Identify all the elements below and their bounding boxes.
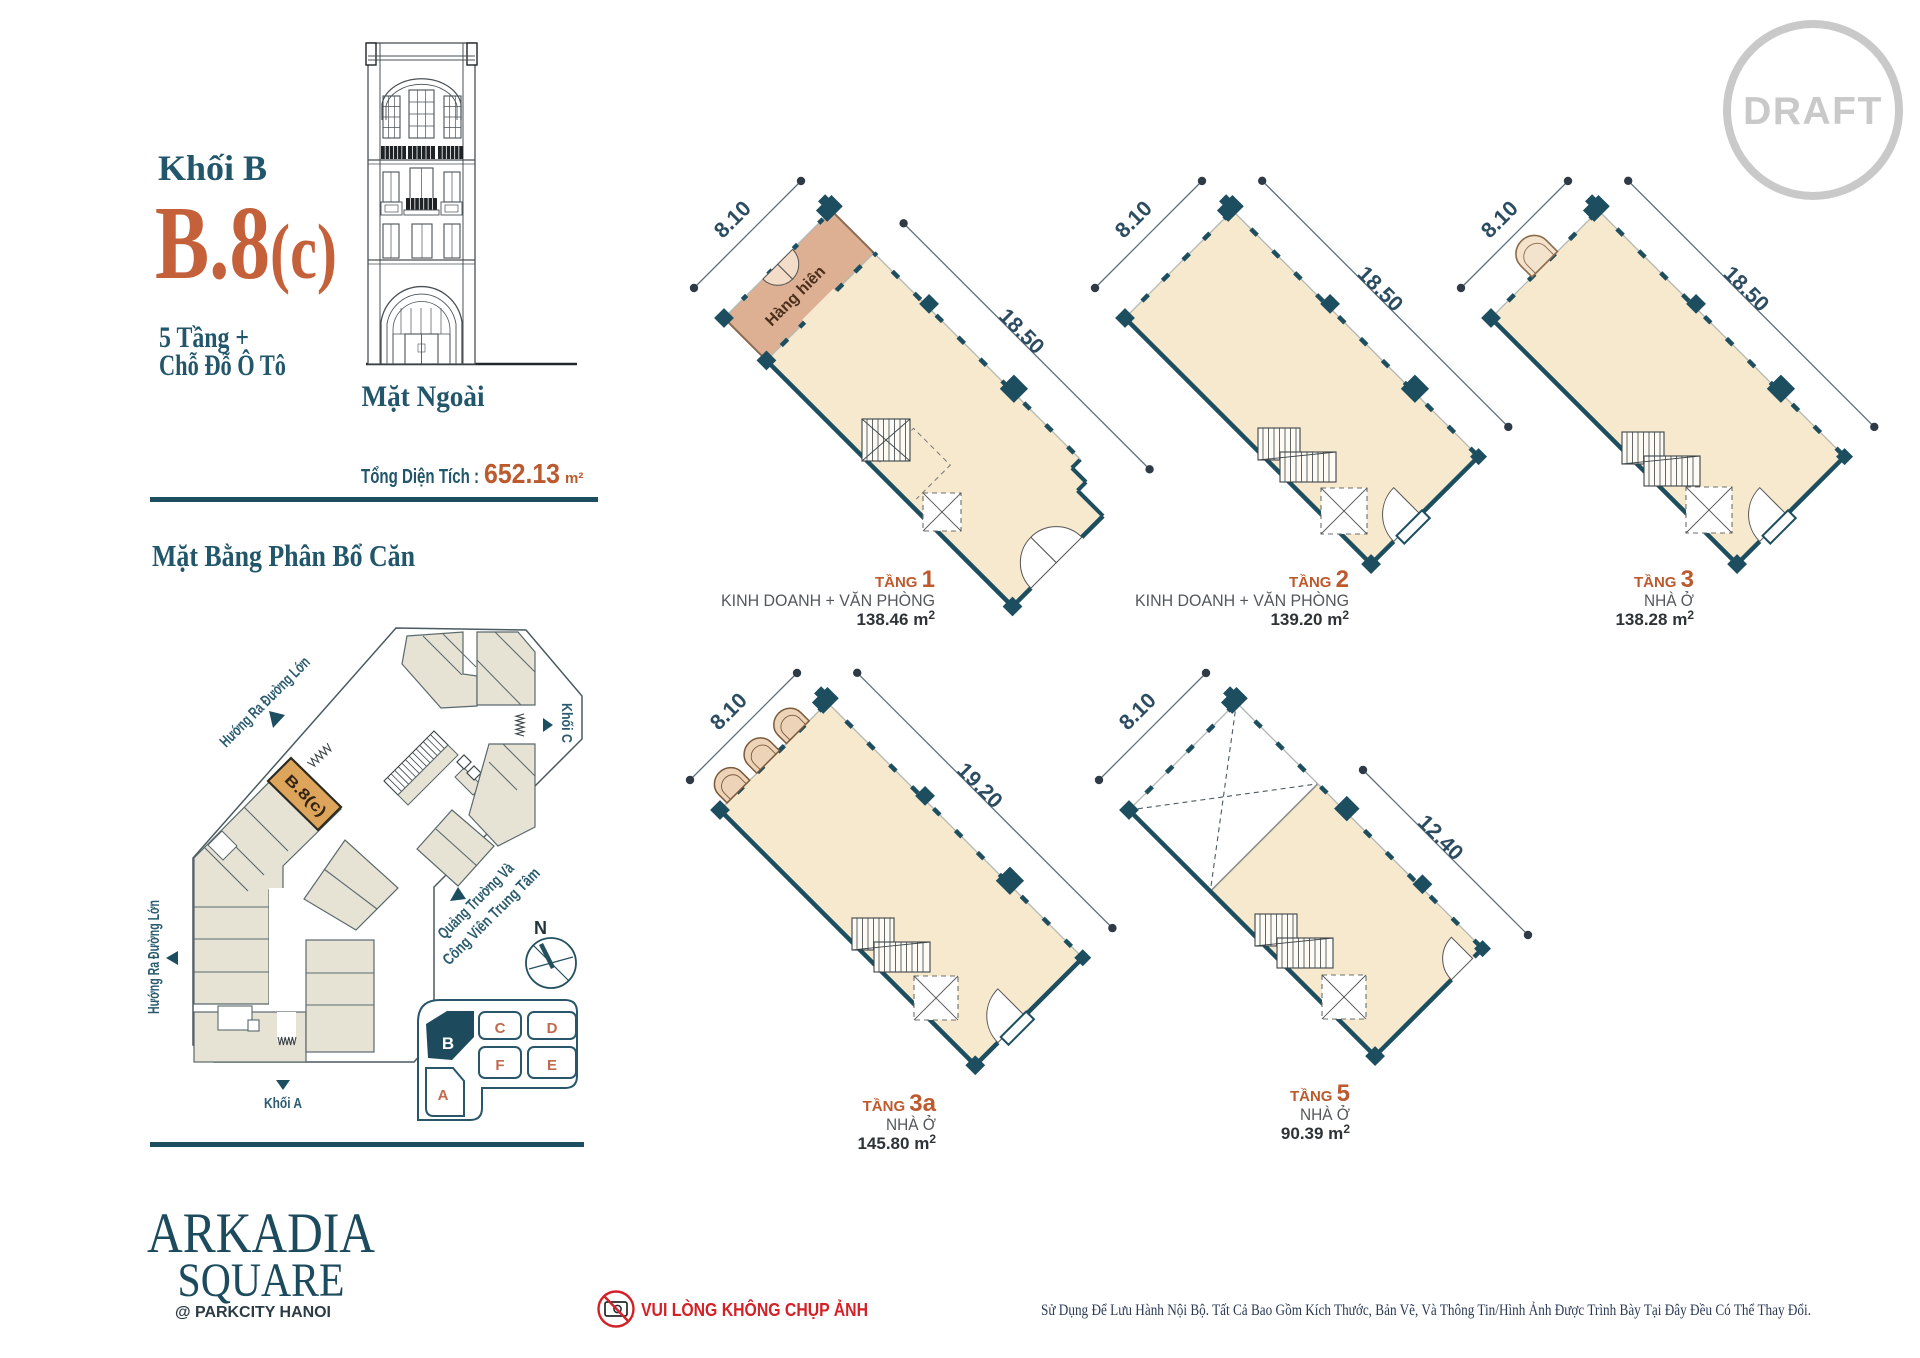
svg-text:Khối B: Khối B	[158, 148, 267, 188]
svg-text:C: C	[495, 1020, 506, 1037]
svg-text:D: D	[547, 1020, 558, 1037]
svg-text:90.39 m2: 90.39 m2	[1281, 1122, 1350, 1143]
svg-text:KINH DOANH + VĂN PHÒNG: KINH DOANH + VĂN PHÒNG	[1135, 591, 1349, 610]
svg-text:Khối C: Khối C	[558, 703, 575, 743]
svg-text:138.28 m2: 138.28 m2	[1615, 608, 1694, 629]
svg-text:Mặt Ngoài: Mặt Ngoài	[362, 380, 485, 413]
svg-text:VUI LÒNG KHÔNG CHỤP ẢNH: VUI LÒNG KHÔNG CHỤP ẢNH	[641, 1299, 868, 1320]
svg-text:652.13: 652.13	[484, 458, 560, 489]
svg-text:@ PARKCITY HANOI: @ PARKCITY HANOI	[175, 1304, 331, 1321]
svg-text:Hướng Ra Đường Lớn: Hướng Ra Đường Lớn	[146, 900, 163, 1014]
svg-text:Tổng Diện Tích :: Tổng Diện Tích :	[361, 466, 479, 488]
svg-text:Chỗ Đỗ Ô Tô: Chỗ Đỗ Ô Tô	[159, 349, 286, 382]
svg-text:m²: m²	[565, 470, 583, 487]
svg-text:145.80 m2: 145.80 m2	[857, 1132, 936, 1153]
svg-text:B: B	[442, 1034, 454, 1053]
svg-text:Mặt Bằng Phân Bổ Căn: Mặt Bằng Phân Bổ Căn	[152, 538, 415, 573]
svg-text:Sử Dụng Để Lưu Hành Nội Bộ. Tấ: Sử Dụng Để Lưu Hành Nội Bộ. Tất Cả Bao G…	[1041, 1300, 1811, 1319]
svg-text:DRAFT: DRAFT	[1743, 90, 1883, 133]
svg-text:F: F	[495, 1057, 504, 1074]
svg-text:Khối A: Khối A	[264, 1095, 302, 1112]
svg-text:SQUARE: SQUARE	[178, 1254, 345, 1307]
svg-text:N: N	[534, 918, 547, 938]
svg-text:KINH DOANH + VĂN PHÒNG: KINH DOANH + VĂN PHÒNG	[721, 591, 935, 610]
svg-text:138.46 m2: 138.46 m2	[856, 608, 935, 629]
svg-text:A: A	[438, 1087, 449, 1104]
svg-text:E: E	[547, 1057, 557, 1074]
svg-text:139.20 m2: 139.20 m2	[1270, 608, 1349, 629]
